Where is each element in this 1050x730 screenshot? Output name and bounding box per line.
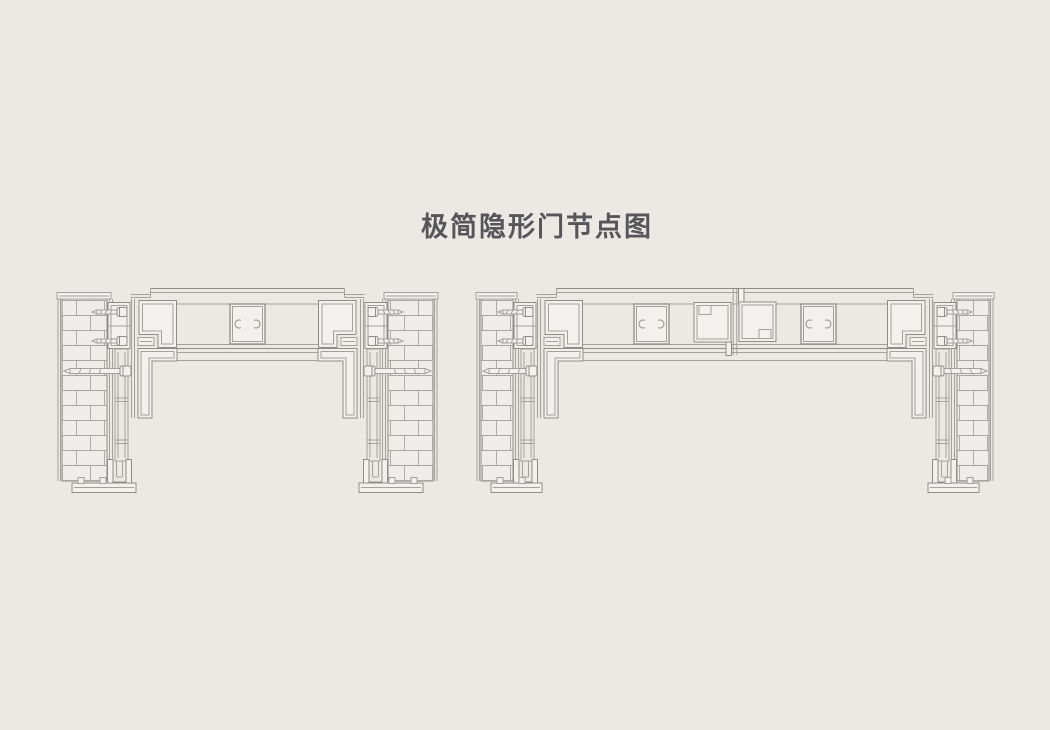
frame-return-profile (544, 349, 583, 419)
door-edge-profile (138, 301, 177, 348)
connector-block (634, 304, 669, 344)
brick-wall (62, 299, 107, 481)
connector-block (801, 304, 836, 344)
brick-wall (957, 299, 989, 481)
door-edge-profile (544, 301, 583, 348)
brick-wall (481, 299, 513, 481)
double-door-node-detail (476, 289, 994, 493)
right-half (248, 289, 439, 493)
wall-top-cap (57, 293, 111, 300)
wall-top-cap (953, 293, 994, 300)
frame-return-profile (887, 349, 926, 419)
door-node-diagrams (0, 0, 1050, 730)
drawing-canvas: 极简隐形门节点图 (0, 0, 1050, 730)
left-meeting-stile (694, 303, 732, 356)
left-half (57, 289, 248, 493)
wall-top-cap (384, 293, 438, 300)
frame-return-profile (138, 349, 177, 419)
single-door-node-detail (57, 289, 438, 493)
wall-top-cap (476, 293, 517, 300)
right-meeting-stile (739, 289, 777, 342)
meeting-stiles (694, 289, 776, 356)
brick-wall (388, 299, 433, 481)
frame-return-profile (318, 349, 357, 419)
door-edge-profile (319, 301, 358, 348)
door-edge-profile (888, 301, 927, 348)
connector-block (230, 304, 265, 344)
